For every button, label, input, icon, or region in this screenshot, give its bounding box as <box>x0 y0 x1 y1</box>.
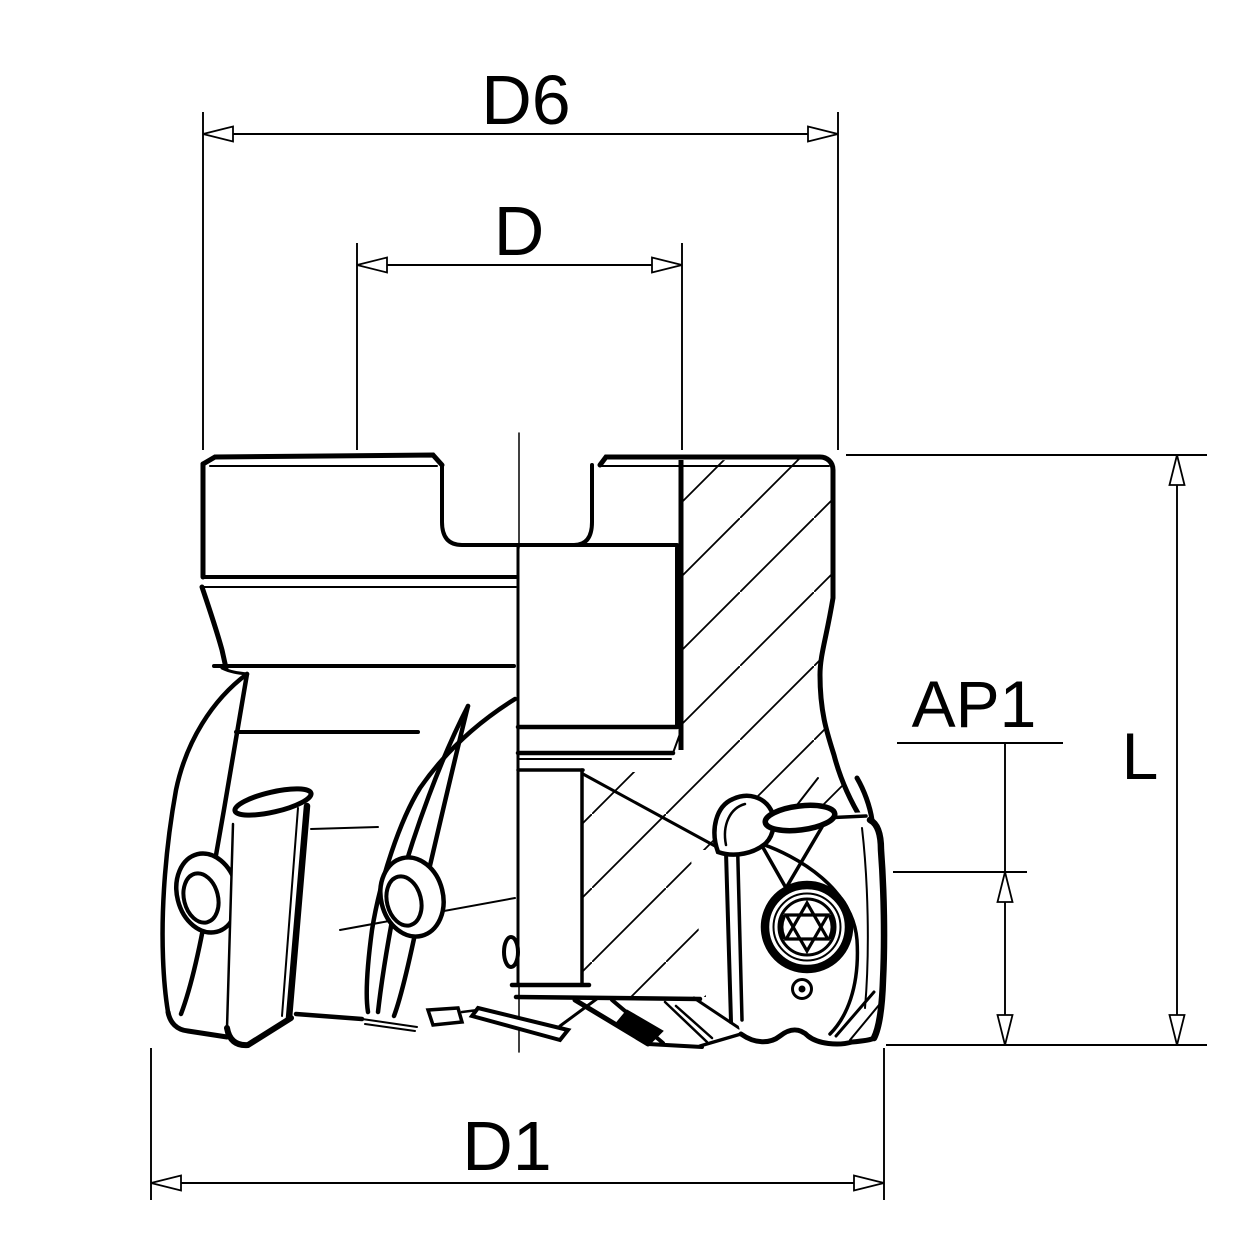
dim-label-d6: D6 <box>481 61 570 139</box>
insert-front <box>227 783 313 1045</box>
arrowhead-right-icon <box>652 258 682 273</box>
arrowhead-left-icon <box>357 258 387 273</box>
arrowhead-right-icon <box>808 127 838 142</box>
dim-label-l: L <box>1122 719 1159 793</box>
dim-label-d: D <box>494 192 545 270</box>
dim-label-d1: D1 <box>462 1107 551 1185</box>
arrowhead-left-icon <box>203 127 233 142</box>
drive-slot <box>442 465 677 545</box>
arrowhead-up-icon <box>1170 455 1185 485</box>
arrowhead-down-icon <box>1170 1015 1185 1045</box>
center-hole-edge <box>504 937 518 967</box>
dimension-d <box>357 243 682 450</box>
dim-label-ap1: AP1 <box>912 667 1037 741</box>
arrowhead-right-icon <box>854 1176 884 1191</box>
bottom-edge-teeth <box>296 998 712 1047</box>
drawing-page: D6 D AP1 L D1 <box>0 0 1243 1235</box>
technical-drawing: D6 D AP1 L D1 <box>0 0 1243 1235</box>
alignment-pin <box>793 980 812 999</box>
arrowhead-down-icon <box>998 1015 1013 1045</box>
dimension-d6 <box>203 112 838 450</box>
arrowhead-left-icon <box>151 1176 181 1191</box>
insert-right <box>714 778 884 1044</box>
dimension-ap1 <box>893 743 1063 1045</box>
cutter-front-view <box>163 577 516 1016</box>
arrowhead-up-icon <box>998 872 1013 902</box>
